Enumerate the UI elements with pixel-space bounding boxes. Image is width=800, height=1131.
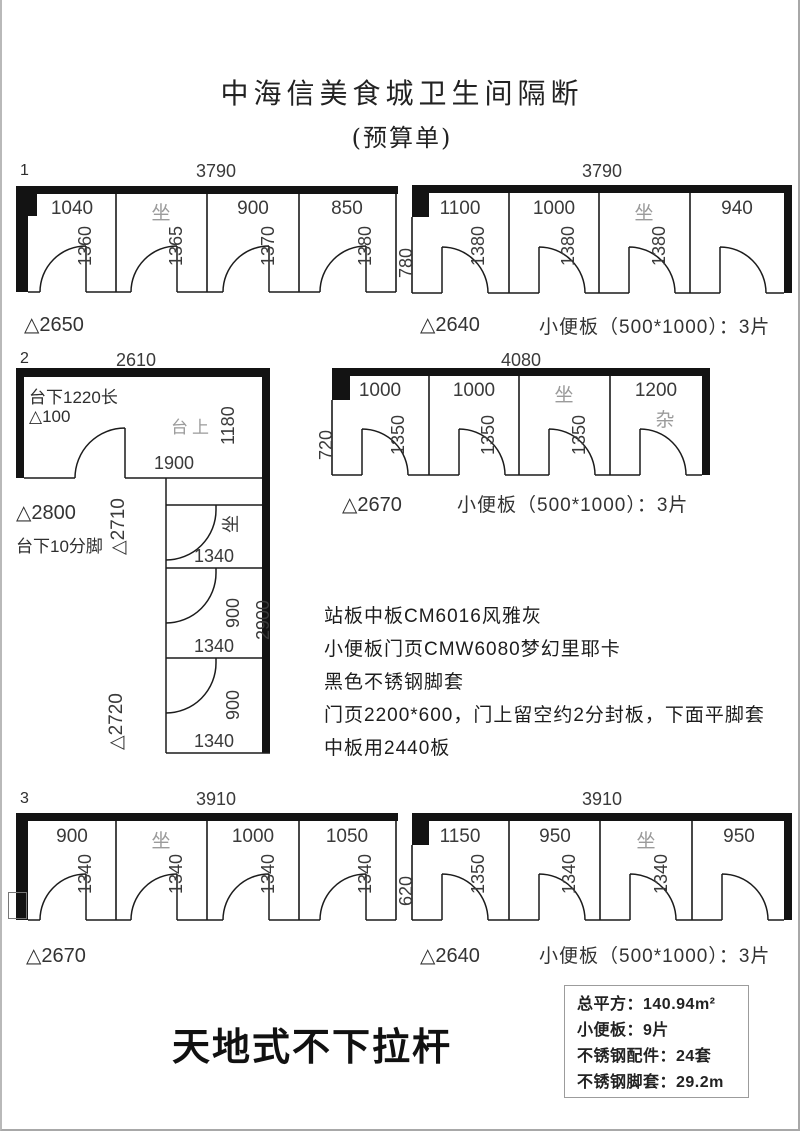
wall-fixture-box [8,892,27,919]
plan-2: 2 2610 台下1220长 △100 台上 1180 1900 △2710 坐… [16,350,316,770]
inner-width-label: 1900 [144,453,204,474]
plan-top-dim: 3790 [502,161,702,182]
stall-width-label: 1000 [208,826,298,848]
stall-width-label: 1340 [184,636,244,657]
stall-depth-label: 1380 [650,226,668,266]
stall-width-label: 1050 [302,826,392,848]
stall-width-label: 900 [208,198,298,220]
ceiling-height-mark: △2670 [342,492,402,517]
stall-width-label: 1100 [415,198,505,220]
entry-depth-label: 780 [397,248,415,278]
stall-width-label: 1000 [509,198,599,220]
ceiling-height-mark: △2640 [420,312,480,337]
ceiling-height-mark: △2640 [420,943,480,968]
spec-line: 中板用2440板 [324,732,794,765]
counter-foot-note: 台下10分脚 [16,532,103,557]
room-depth-label: 1180 [219,406,237,445]
plan-3-top-dim: 3910 [116,789,316,810]
plan-mid-right: 4080 720 1000 1000 坐 1200 杂 1350 1350 13… [327,350,800,520]
stall-depth-label: 1350 [570,415,588,455]
stall-width-label: 1340 [184,546,244,567]
seat-label: 坐 [116,198,206,225]
hardware-count: 不锈钢配件：24套 [577,1044,748,1070]
stall-depth-label: 1350 [389,415,407,455]
total-depth-label: 2900 [254,600,272,640]
corridor-height-mark: △2710 [110,498,128,555]
stall-depth-label: 1370 [259,226,277,266]
ceiling-height-mark: △2800 [16,500,76,525]
plan-top-dim: 3910 [502,789,702,810]
ceiling-height-mark: △2670 [26,943,86,968]
seat-label: 坐 [116,826,206,853]
stall-depth-label: 900 [224,690,242,720]
seat-label: 坐 [519,380,609,407]
stall-depth-label: 1340 [76,854,94,894]
plan-top-dim: 4080 [421,350,621,371]
counter-length-note: 台下1220长 [29,383,118,408]
stall-height-mark: △2720 [108,693,126,750]
counter-top-label: 台上 [171,413,213,438]
spec-line: 黑色不锈钢脚套 [324,666,794,699]
stall-depth-label: 1380 [469,226,487,266]
stall-width-label: 1040 [27,198,117,220]
stall-width-label: 1150 [415,826,505,848]
seat-label: 坐 [599,198,689,225]
urinal-panel-note: 小便板（500*1000）：3片 [539,312,770,339]
stall-width-label: 1000 [429,380,519,402]
spec-notes: 站板中板CM6016风雅灰 小便板门页CMW6080梦幻里耶卡 黑色不锈钢脚套 … [324,600,794,765]
plan-1: 1 3790 1040 坐 900 850 1360 1365 1370 138… [16,160,402,345]
plan-1-top-dim: 3790 [116,161,316,182]
stall-depth-label: 1380 [356,226,374,266]
stall-depth-label: 1340 [560,854,578,894]
stall-width-label: 1340 [184,731,244,752]
total-area: 总平方：140.94m² [577,992,748,1018]
page-title: 中海信美食城卫生间隔断 [2,72,800,112]
counter-height-mark: △100 [29,407,70,427]
stall-depth-label: 900 [224,598,242,628]
ceiling-height-mark: △2650 [24,312,84,337]
stall-width-label: 1000 [335,380,425,402]
stall-width-label: 950 [510,826,600,848]
spec-line: 小便板门页CMW6080梦幻里耶卡 [324,633,794,666]
stall-depth-label: 1350 [479,415,497,455]
spec-line: 站板中板CM6016风雅灰 [324,600,794,633]
footer-title: 天地式不下拉杆 [172,1016,452,1071]
stall-width-label: 950 [694,826,784,848]
page-subtitle: (预算单) [2,118,800,153]
stall-depth-label: 1340 [167,854,185,894]
plan-2-top-dim: 2610 [76,350,196,371]
seat-label: 坐 [222,515,240,533]
seat-label: 坐 [601,826,691,853]
urinal-panel-note: 小便板（500*1000）：3片 [457,490,688,517]
entry-depth-label: 620 [397,876,415,906]
plan-bottom-right: 3910 620 1150 950 坐 950 1350 1340 1340 △… [407,788,800,978]
plan-3-index: 3 [20,790,29,808]
foot-cover-length: 不锈钢脚套：29.2m [577,1070,748,1096]
budget-drawing-sheet: 中海信美食城卫生间隔断 (预算单) 1 3790 1040 坐 900 850 [0,0,800,1131]
urinal-panel-note: 小便板（500*1000）：3片 [539,941,770,968]
plan-3: 3 3910 900 坐 1000 1050 1340 1340 1340 13… [16,788,402,978]
stall-width-label: 1200 [611,380,701,402]
spec-line: 门页2200*600，门上留空约2分封板，下面平脚套 [324,699,794,732]
entry-depth-label: 720 [317,430,335,460]
stall-depth-label: 1350 [469,854,487,894]
misc-room-label: 杂 [620,405,710,432]
stall-depth-label: 1365 [167,226,185,266]
plan-top-right: 3790 780 1100 1000 坐 940 1380 1380 1380 … [407,160,800,345]
stall-depth-label: 1340 [356,854,374,894]
stall-width-label: 900 [27,826,117,848]
stall-depth-label: 1340 [259,854,277,894]
totals-box: 总平方：140.94m² 小便板：9片 不锈钢配件：24套 不锈钢脚套：29.2… [564,985,749,1098]
stall-depth-label: 1340 [652,854,670,894]
stall-depth-label: 1360 [76,226,94,266]
stall-width-label: 850 [302,198,392,220]
stall-width-label: 940 [692,198,782,220]
stall-depth-label: 1380 [559,226,577,266]
plan-1-index: 1 [20,162,29,180]
urinal-panel-count: 小便板：9片 [577,1018,748,1044]
plan-2-index: 2 [20,350,29,368]
